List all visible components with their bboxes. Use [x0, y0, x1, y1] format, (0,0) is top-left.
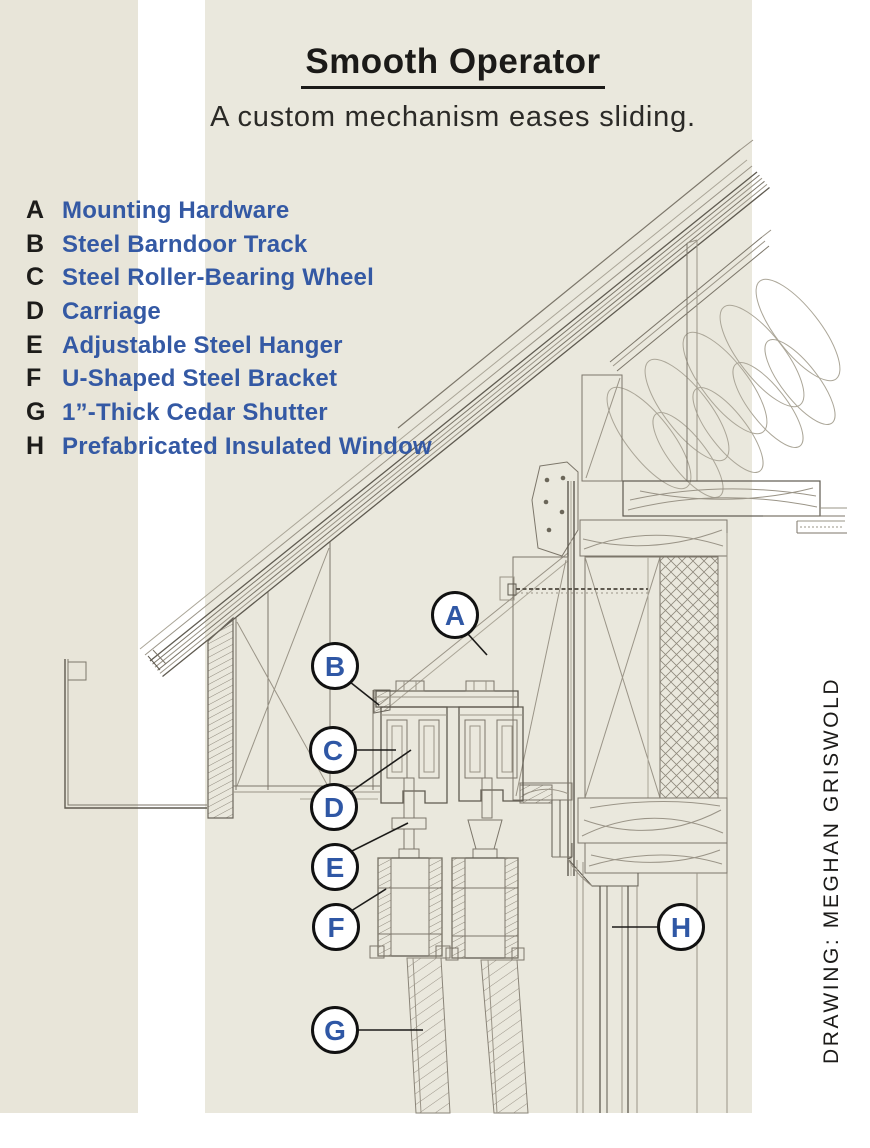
callout-e: E	[313, 845, 358, 890]
u-brackets	[370, 858, 524, 960]
page-title: Smooth Operator	[301, 44, 604, 89]
callout-g: G	[313, 1008, 358, 1053]
header: Smooth Operator A custom mechanism eases…	[36, 44, 870, 132]
top-plate-beam	[623, 481, 847, 533]
callout-g-letter: G	[324, 1015, 346, 1046]
batt-insulation	[593, 268, 853, 507]
callout-a-letter: A	[445, 600, 465, 631]
window-frame	[568, 843, 697, 1113]
technical-drawing-sketch: A B C D E F G H	[0, 0, 870, 1148]
legend-key-g: G	[26, 396, 62, 430]
legend-item-f: FU-Shaped Steel Bracket	[26, 362, 432, 396]
legend-item-a: AMounting Hardware	[26, 194, 432, 228]
legend-item-c: CSteel Roller-Bearing Wheel	[26, 261, 432, 295]
legend-label-e: Adjustable Steel Hanger	[62, 332, 343, 359]
wall-outer-face	[718, 533, 727, 1113]
callout-d-letter: D	[324, 792, 344, 823]
legend-label-b: Steel Barndoor Track	[62, 231, 307, 258]
legend-key-h: H	[26, 430, 62, 464]
cedar-shutters	[407, 958, 528, 1113]
legend-list: AMounting Hardware BSteel Barndoor Track…	[26, 194, 432, 464]
legend-item-d: DCarriage	[26, 295, 432, 329]
callout-h-letter: H	[671, 912, 691, 943]
callout-c: C	[311, 728, 356, 773]
legend-item-g: G1”-Thick Cedar Shutter	[26, 396, 432, 430]
gutter	[65, 659, 207, 808]
callout-f: F	[314, 905, 359, 950]
callout-a: A	[433, 593, 478, 638]
legend-label-g: 1”-Thick Cedar Shutter	[62, 399, 328, 426]
wall-insulation-lattice	[660, 557, 718, 798]
legend-key-d: D	[26, 295, 62, 329]
carriage-left	[381, 707, 447, 818]
legend-label-h: Prefabricated Insulated Window	[62, 433, 432, 460]
legend-key-a: A	[26, 194, 62, 228]
eave-post	[208, 618, 233, 818]
legend-label-a: Mounting Hardware	[62, 197, 289, 224]
legend-key-f: F	[26, 362, 62, 396]
legend-item-b: BSteel Barndoor Track	[26, 228, 432, 262]
callout-f-letter: F	[327, 912, 344, 943]
page-subtitle: A custom mechanism eases sliding.	[36, 103, 870, 132]
legend-label-f: U-Shaped Steel Bracket	[62, 365, 337, 392]
legend-key-e: E	[26, 329, 62, 363]
adjustable-hangers	[392, 818, 502, 858]
barndoor-track	[374, 681, 518, 713]
legend-key-b: B	[26, 228, 62, 262]
legend-item-e: EAdjustable Steel Hanger	[26, 329, 432, 363]
wall-beam	[580, 520, 727, 556]
legend-key-c: C	[26, 261, 62, 295]
legend-label-d: Carriage	[62, 298, 161, 325]
legend-item-h: HPrefabricated Insulated Window	[26, 430, 432, 464]
drawing-credit: DRAWING: MEGHAN GRISWOLD	[820, 704, 844, 1064]
callout-c-letter: C	[323, 735, 343, 766]
wall-stud	[568, 481, 574, 876]
callout-h: H	[659, 905, 704, 950]
infographic-root: A B C D E F G H Smooth	[0, 0, 870, 1148]
legend-label-c: Steel Roller-Bearing Wheel	[62, 264, 374, 291]
callout-b: B	[313, 644, 358, 689]
callout-b-letter: B	[325, 651, 345, 682]
callout-d: D	[312, 785, 357, 830]
track-mount-board	[500, 557, 568, 803]
callout-e-letter: E	[326, 852, 345, 883]
